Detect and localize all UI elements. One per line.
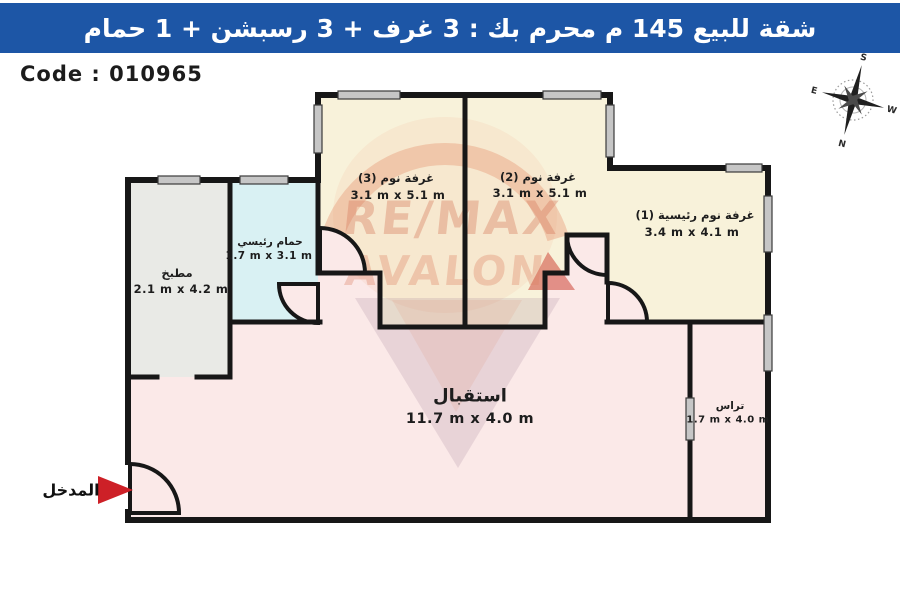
bedroom3-side-window (314, 105, 322, 153)
bedroom2-top-window (543, 91, 601, 99)
exterior-walls (128, 95, 768, 520)
master-door-arc (608, 283, 647, 322)
floorplan-walls-layer: S N E W (0, 0, 900, 599)
bedroom3-door-arc (320, 228, 365, 273)
interior-walls (128, 95, 768, 520)
compass-west-label: W (886, 105, 898, 117)
compass-north-label: N (837, 139, 847, 151)
right-wall-lower-window (764, 315, 772, 371)
kitchen-window (158, 176, 200, 184)
compass-south-label: S (859, 53, 868, 64)
bathroom-door-arc (279, 284, 318, 323)
entrance-arrow-icon (98, 476, 133, 504)
terrace-dimensions: 1.7 m x 4.0 m (686, 415, 769, 426)
compass-icon: S N E W (799, 43, 900, 160)
entrance-door-arc (130, 464, 179, 513)
kitchen-dimensions: 2.1 m x 4.2 m (134, 282, 229, 296)
reception-dimensions: 11.7 m x 4.0 m (406, 411, 534, 427)
master-top-window (726, 164, 762, 172)
bedroom2-dimensions: 3.1 m x 5.1 m (493, 186, 588, 200)
bathroom-label: حمام رئيسي (237, 236, 302, 248)
bathroom-window (240, 176, 288, 184)
master-bedroom-dimensions: 3.4 m x 4.1 m (645, 225, 740, 239)
bedroom3-label: غرفة نوم (3) (358, 171, 434, 185)
bedroom2-door-arc (567, 235, 607, 275)
master-right-window (764, 196, 772, 252)
bedroom3-top-window (338, 91, 400, 99)
entrance-label: المدخل (42, 481, 99, 500)
terrace-label: تراس (716, 400, 745, 412)
bedroom2-side-window (606, 105, 614, 157)
bedroom3-dimensions: 3.1 m x 5.1 m (351, 188, 446, 202)
kitchen-label: مطبخ (161, 266, 192, 280)
bathroom-dimensions: 1.7 m x 3.1 m (226, 250, 313, 262)
compass-east-label: E (810, 86, 818, 97)
bedroom2-label: غرفة نوم (2) (500, 170, 576, 184)
reception-label: استقبال (433, 386, 507, 407)
floorplan-page: شقة للبيع 145 م محرم بك : 3 غرف + 3 رسبش… (0, 0, 900, 599)
master-bedroom-label: غرفة نوم رئيسية (1) (635, 208, 754, 222)
